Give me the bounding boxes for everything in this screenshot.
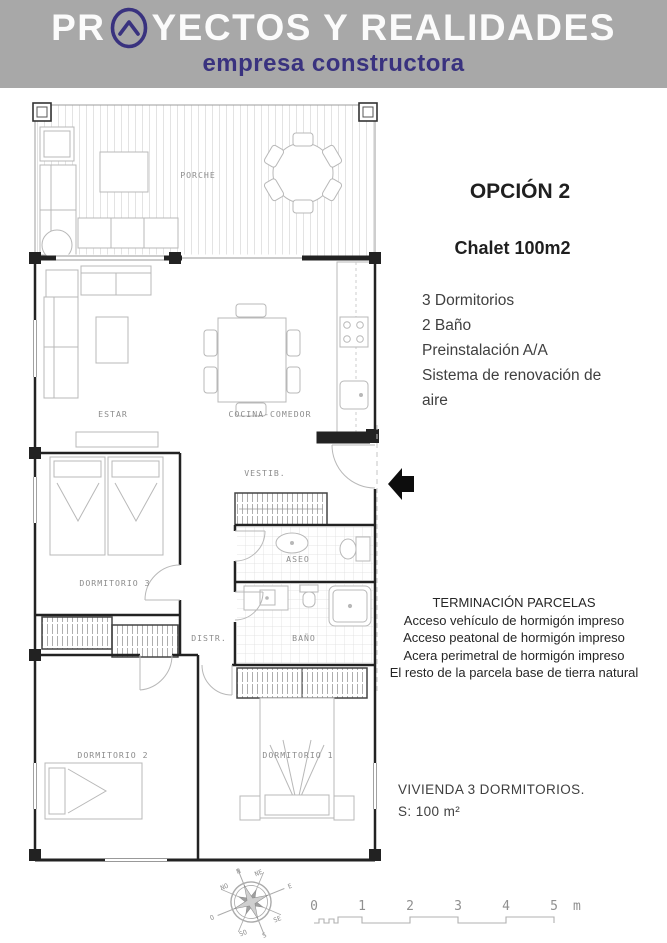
brand-prefix: PR (51, 6, 105, 50)
room-label-corridor: DISTR. (191, 633, 227, 643)
room-label-bedroom2: DORMITORIO 2 (77, 750, 148, 760)
room-label-hall: VESTIB. (244, 468, 286, 478)
toilet-icon (356, 537, 370, 561)
nightstand (334, 796, 354, 820)
header-band: PR YECTOS Y REALIDADES empresa construct… (0, 0, 667, 88)
compass-e: E (287, 882, 294, 891)
option-title: OPCIÓN 2 (390, 180, 650, 204)
compass-se: SE (272, 914, 282, 924)
flyer-page: PR YECTOS Y REALIDADES empresa construct… (0, 0, 667, 943)
compass-n: N (235, 867, 242, 876)
scale-bar-line (314, 917, 554, 923)
dwelling-surface: S: 100 m² (398, 801, 638, 823)
parcel-finishes-title: TERMINACIÓN PARCELAS (381, 594, 647, 612)
scale-tick: 4 (502, 899, 510, 914)
tv-bench (76, 432, 158, 447)
kitchen-sink-icon (340, 381, 368, 409)
dining-set (204, 304, 300, 416)
outdoor-bench (78, 218, 178, 248)
bedroom2-wardrobe (112, 625, 178, 657)
scale-tick: 2 (406, 899, 414, 914)
parcel-finishes-line: Acceso peatonal de hormigón impreso (381, 629, 647, 647)
compass-s: S (261, 931, 268, 940)
scale-tick: 3 (454, 899, 462, 914)
compass-so: SO (238, 928, 248, 938)
compass-o: O (209, 913, 216, 922)
room-label-kitchen: COCINA-COMEDOR (228, 409, 311, 419)
parcel-finishes: TERMINACIÓN PARCELAS Acceso vehículo de … (381, 594, 647, 682)
stove-icon (340, 317, 368, 347)
armchair (46, 270, 78, 297)
brand-subtitle: empresa constructora (0, 50, 667, 78)
outdoor-armchair (40, 127, 74, 161)
kitchen-counter (337, 262, 375, 434)
room-label-toilet: ASEO (286, 554, 310, 564)
room-label-bathroom: BAÑO (292, 633, 316, 643)
feature-item: 2 Baño (422, 313, 617, 338)
round-dining-set (263, 133, 342, 213)
porch-post (33, 103, 51, 121)
compass-ne: NE (254, 868, 264, 878)
bedroom3-wardrobe (42, 617, 112, 649)
room-label-porch: PORCHE (180, 170, 216, 180)
porch-post (359, 103, 377, 121)
brand-title: PR YECTOS Y REALIDADES (0, 6, 667, 50)
coffee-table (96, 317, 128, 363)
toilet-icon (300, 585, 318, 592)
scale-bar: 0 1 2 3 4 5 m (300, 893, 610, 938)
compass-rose-icon: N NE E SE S SO O NO (205, 864, 305, 943)
room-label-living: ESTAR (98, 409, 128, 419)
entrance-arrow-icon (388, 468, 414, 500)
scale-tick: 1 (358, 899, 366, 914)
model-title: Chalet 100m2 (390, 238, 635, 259)
entry-opening (370, 443, 380, 489)
scale-unit: m (573, 899, 581, 914)
nightstand (240, 796, 260, 820)
feature-item: 3 Dormitorios (422, 288, 617, 313)
feature-item: Preinstalación A/A (422, 338, 617, 363)
room-label-bedroom3: DORMITORIO 3 (79, 578, 150, 588)
scale-tick: 0 (310, 899, 318, 914)
dwelling-type: VIVIENDA 3 DORMITORIOS. (398, 779, 638, 801)
parcel-finishes-line: Acera perimetral de hormigón impreso (381, 647, 647, 665)
compass-no: NO (219, 882, 229, 892)
room-label-bedroom1: DORMITORIO 1 (262, 750, 333, 760)
feature-item: Sistema de renovación de aire (422, 363, 617, 413)
dining-table (218, 318, 286, 402)
porch-table (100, 152, 148, 192)
scale-tick: 5 (550, 899, 558, 914)
bedroom2-bed (45, 763, 142, 819)
floor-plan: PORCHE ESTAR COCINA-COMEDOR VESTIB. DORM… (20, 95, 420, 875)
brand-suffix: YECTOS Y REALIDADES (152, 6, 616, 50)
parcel-finishes-line: Acceso vehículo de hormigón impreso (381, 612, 647, 630)
feature-list: 3 Dormitorios 2 Baño Preinstalación A/A … (422, 288, 617, 413)
roof-chevron-logo-icon (108, 6, 150, 50)
parcel-finishes-line: El resto de la parcela base de tierra na… (381, 664, 647, 682)
dwelling-summary: VIVIENDA 3 DORMITORIOS. S: 100 m² (398, 779, 638, 823)
